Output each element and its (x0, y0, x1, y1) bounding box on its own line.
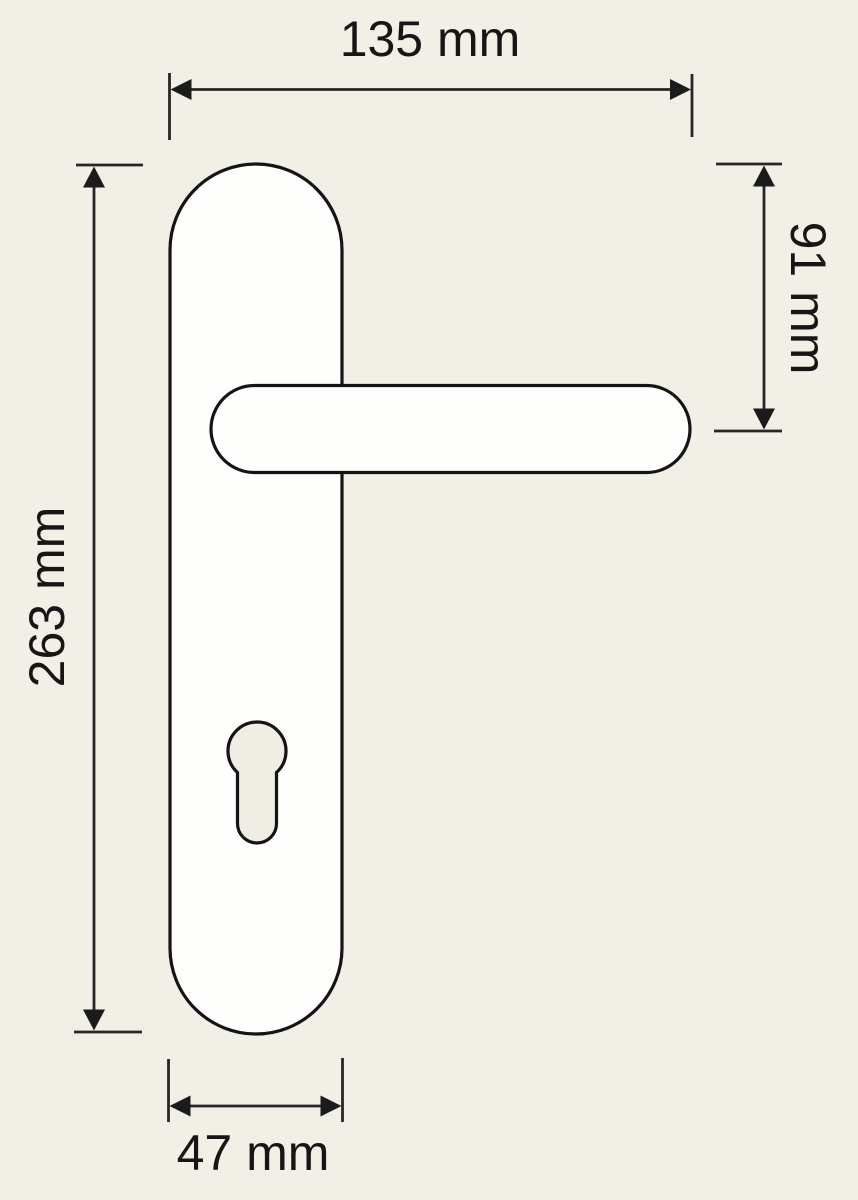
svg-text:263 mm: 263 mm (19, 507, 75, 688)
svg-text:91 mm: 91 mm (780, 222, 836, 375)
svg-text:47 mm: 47 mm (177, 1125, 330, 1181)
svg-text:135 mm: 135 mm (340, 11, 521, 67)
